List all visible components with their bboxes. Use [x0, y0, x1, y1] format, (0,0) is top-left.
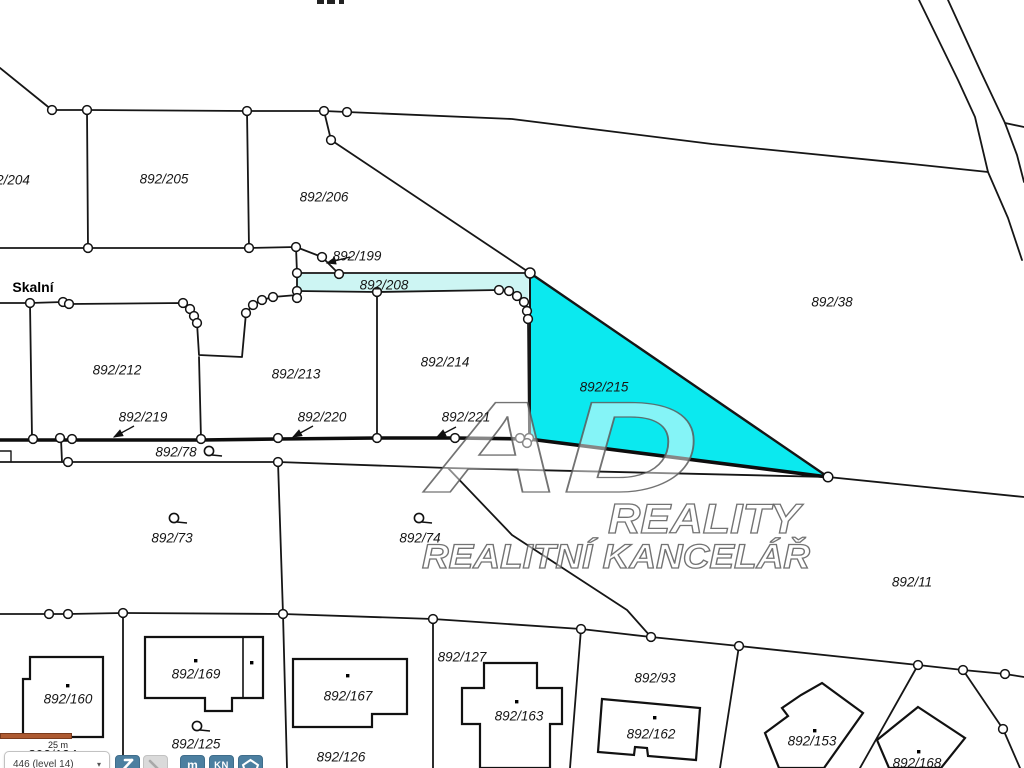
back-arrow-icon [116, 756, 139, 768]
house-892-169 [145, 637, 263, 711]
parcel-polygon-icon [239, 756, 262, 768]
clipped-label-marks [317, 0, 344, 4]
parcel-892-208-highlight[interactable] [297, 274, 529, 318]
kn-button[interactable]: KN [209, 755, 234, 768]
zoom-level-text: 446 (level 14) [13, 759, 74, 768]
forward-arrow-icon [144, 756, 167, 768]
cadastral-map-svg: AD REALITY REALITNÍ KANCELÁŘ [0, 0, 1024, 768]
scale-bar-label: 25 m [48, 740, 68, 750]
house-892-167 [293, 659, 407, 727]
measure-label: m [187, 756, 198, 768]
parcel-info-button[interactable] [238, 755, 263, 768]
house-892-153 [765, 683, 863, 768]
house-892-160 [23, 657, 103, 737]
kn-label: KN [214, 756, 229, 768]
map-canvas[interactable]: AD REALITY REALITNÍ KANCELÁŘ 2/204892/20… [0, 0, 1024, 768]
watermark-reality: REALITY [608, 495, 804, 542]
house-892-163 [462, 663, 562, 768]
scale-bar [0, 733, 72, 739]
watermark-kancelar: REALITNÍ KANCELÁŘ [422, 538, 810, 576]
back-button[interactable] [115, 755, 140, 768]
chevron-down-icon: ▾ [97, 760, 101, 768]
measure-button[interactable]: m [180, 755, 205, 768]
forward-button[interactable] [143, 755, 168, 768]
zoom-level-indicator[interactable]: 446 (level 14) ▾ [4, 751, 110, 768]
houses [23, 637, 965, 768]
house-892-162 [598, 699, 700, 760]
